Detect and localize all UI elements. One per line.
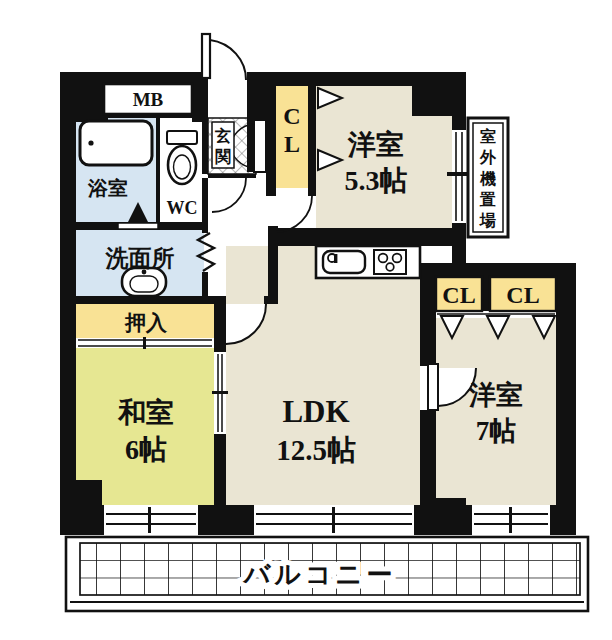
label-western-5-3-name: 洋室 — [347, 129, 404, 160]
bathtub-icon — [80, 121, 152, 165]
stove-icon — [374, 250, 406, 274]
wall — [420, 263, 576, 277]
wall — [452, 116, 466, 130]
door-arc-western-5-3 — [276, 196, 312, 232]
wall — [60, 505, 104, 535]
label-closet-a: CL — [442, 282, 475, 308]
kitchen-sink-icon — [323, 251, 365, 273]
door-arc-wc — [212, 178, 246, 212]
front-door — [202, 34, 246, 80]
wall — [264, 296, 278, 304]
label-ldk-size: 12.5帖 — [276, 434, 356, 466]
wall — [266, 86, 276, 196]
label-toilet: WC — [167, 198, 198, 218]
label-outdoor-unit-char: 外 — [479, 149, 497, 166]
label-outdoor-unit-char: 室 — [480, 127, 496, 145]
label-western-7-size: 7帖 — [476, 416, 517, 446]
fusuma-oshiire — [76, 337, 214, 349]
label-outdoor-unit-char: 場 — [479, 212, 496, 229]
wall — [412, 72, 466, 116]
label-outdoor-unit-char: 機 — [479, 170, 496, 187]
wall — [108, 72, 192, 84]
wall — [202, 118, 208, 174]
label-ldk-name: LDK — [282, 394, 349, 429]
room-ldk-floor — [226, 246, 420, 505]
wall — [76, 480, 102, 507]
label-entrance-closet-char-1: C — [283, 103, 300, 129]
sliding-door-washitsu — [212, 352, 228, 434]
wall — [272, 228, 452, 246]
label-mb: MB — [133, 89, 164, 110]
wall — [198, 505, 254, 535]
wall — [308, 86, 316, 196]
wall — [556, 277, 576, 535]
toilet-icon — [167, 131, 197, 184]
label-washitsu-name: 和室 — [117, 397, 174, 428]
label-western-7-name: 洋室 — [468, 380, 523, 410]
window-washitsu — [104, 507, 198, 533]
wall — [420, 263, 436, 366]
label-outdoor-unit: 室 外 機 置 場 — [479, 127, 497, 229]
window-western-7 — [472, 507, 550, 533]
floorplan-canvas: MB 浴室 WC 玄 関 洗面所 C L 洋室 5.3帖 押入 和室 6帖 LD… — [0, 0, 612, 640]
label-oshiire: 押入 — [124, 311, 168, 335]
wall — [156, 118, 160, 224]
window-ldk — [254, 507, 414, 533]
label-balcony: バルコニー — [242, 560, 396, 589]
wall — [414, 505, 472, 535]
label-washitsu-size: 6帖 — [125, 434, 167, 465]
entrance-step-line — [208, 174, 256, 178]
wall — [267, 72, 412, 86]
wall — [420, 410, 436, 498]
wall — [482, 277, 490, 311]
label-entrance-char-1: 玄 — [214, 127, 231, 144]
kitchen-counter — [316, 246, 420, 278]
label-bathroom: 浴室 — [87, 177, 128, 199]
wall — [60, 122, 76, 535]
washbasin-icon — [122, 268, 166, 296]
label-entrance-closet-char-2: L — [284, 131, 300, 157]
label-western-5-3-size: 5.3帖 — [345, 165, 408, 196]
wall — [550, 505, 576, 535]
label-closet-b: CL — [506, 282, 539, 308]
label-washroom: 洗面所 — [105, 246, 175, 271]
label-outdoor-unit-char: 置 — [479, 191, 496, 208]
floorplan-drawing: MB 浴室 WC 玄 関 洗面所 C L 洋室 5.3帖 押入 和室 6帖 LD… — [0, 0, 612, 640]
label-entrance-char-2: 関 — [215, 148, 231, 165]
